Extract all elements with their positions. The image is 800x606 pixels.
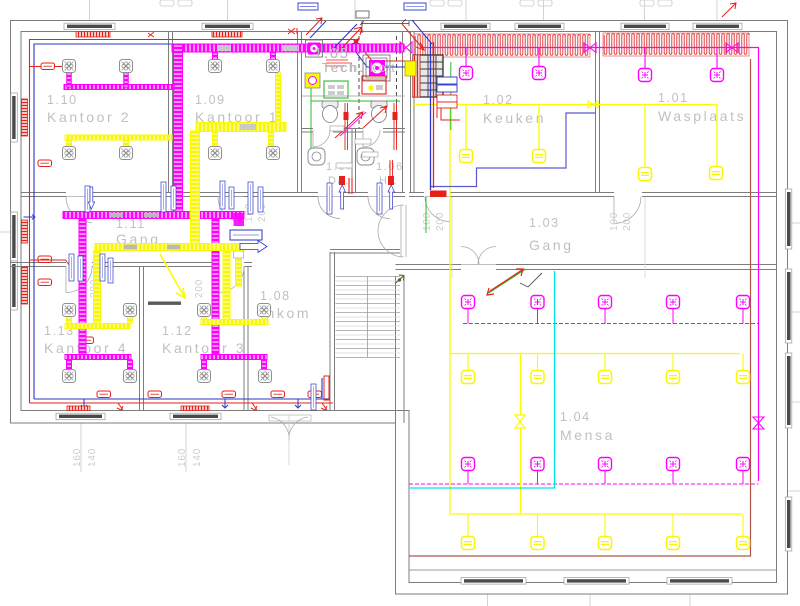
svg-text:1.11: 1.11 — [116, 217, 146, 231]
svg-text:1.10: 1.10 — [47, 93, 78, 107]
svg-text:1.01: 1.01 — [658, 91, 689, 105]
svg-text:1.09: 1.09 — [195, 93, 226, 107]
svg-text:140: 140 — [192, 448, 203, 467]
svg-text:160: 160 — [72, 448, 83, 467]
svg-text:Wasplaats: Wasplaats — [658, 108, 746, 124]
svg-text:Gang: Gang — [529, 237, 574, 253]
svg-text:200: 200 — [435, 212, 446, 231]
svg-text:200: 200 — [622, 212, 633, 231]
svg-text:Keuken: Keuken — [483, 110, 546, 126]
svg-text:Kantoor 2: Kantoor 2 — [47, 109, 131, 125]
svg-text:100: 100 — [422, 212, 433, 231]
svg-text:1.04: 1.04 — [560, 410, 591, 424]
svg-text:100: 100 — [609, 212, 620, 231]
svg-text:140: 140 — [87, 448, 98, 467]
svg-text:Mensa: Mensa — [560, 427, 615, 443]
svg-text:200: 200 — [194, 279, 205, 298]
svg-text:1.12: 1.12 — [162, 324, 193, 338]
svg-text:1.03: 1.03 — [529, 216, 560, 230]
svg-text:Kantoor 3: Kantoor 3 — [162, 340, 246, 356]
svg-text:160: 160 — [177, 448, 188, 467]
svg-text:1.08: 1.08 — [260, 289, 291, 303]
svg-text:Tech. kot: Tech. kot — [322, 60, 394, 75]
